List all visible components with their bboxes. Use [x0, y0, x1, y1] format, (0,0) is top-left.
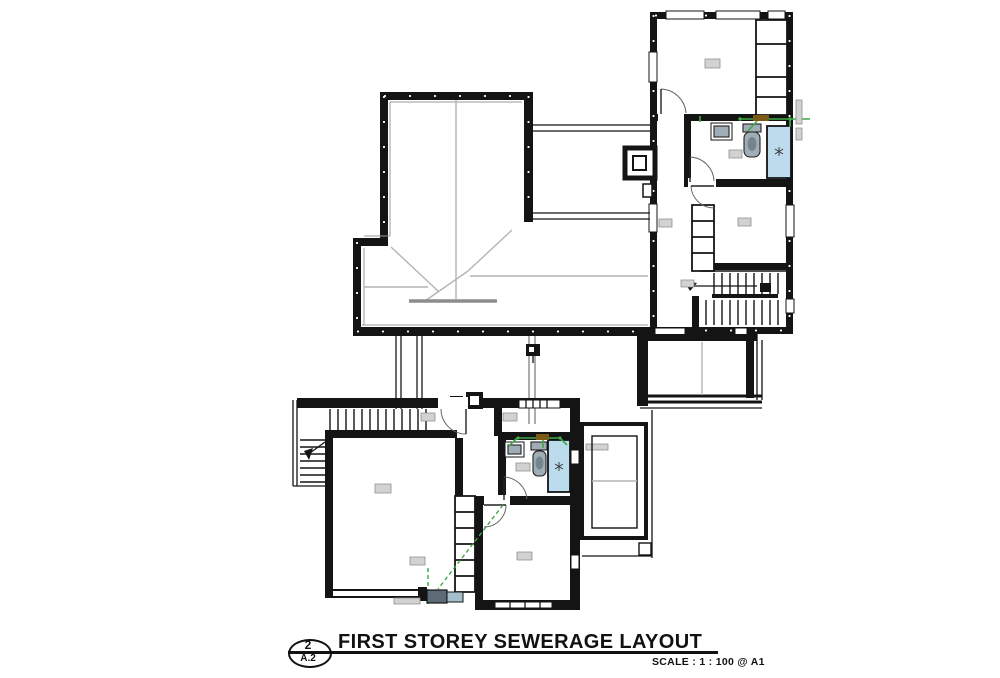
chimney-flue — [633, 156, 646, 170]
roof-parapet-walls — [353, 92, 653, 336]
lower-walls — [297, 392, 580, 610]
annex-bedroom-wardrobe — [692, 205, 714, 271]
lower-wc-bowl — [536, 457, 544, 470]
lower-wing — [293, 392, 608, 610]
stair-rails — [293, 400, 437, 486]
gully-inlet — [422, 593, 427, 600]
annex-basin-bowl — [714, 126, 729, 137]
annex-wc-cistern — [743, 124, 761, 132]
annex-room1-wardrobe — [756, 20, 787, 115]
upper-annex — [649, 11, 810, 335]
annex-wc-bowl — [748, 137, 757, 151]
pipe-node — [558, 436, 561, 439]
scale-label: SCALE : 1 : 100 @ A1 — [652, 656, 765, 668]
lower-wc-cistern — [531, 442, 547, 450]
roof-ridge-lines — [364, 100, 648, 301]
annex-terrace — [637, 334, 762, 408]
terrace-railing — [640, 396, 762, 402]
lower-door-arcs — [441, 409, 527, 527]
annex-stair-newel — [760, 283, 771, 292]
gully-grate — [447, 592, 463, 602]
annex-pipe-fitting — [753, 115, 769, 121]
external-stair-treads — [300, 409, 426, 482]
porch-canopy — [582, 410, 652, 558]
detail-number: 2 — [288, 638, 328, 652]
canopy-post — [639, 543, 651, 555]
lower-pipe-fitting — [536, 434, 549, 440]
lower-basin-bowl — [508, 445, 521, 454]
floor-plan-canvas — [0, 0, 1000, 678]
living-window-band — [333, 590, 418, 597]
pipe-node — [516, 436, 519, 439]
pipe-node — [788, 117, 791, 120]
drawing-title: FIRST STOREY SEWERAGE LAYOUT — [338, 631, 702, 654]
pipe-node — [738, 117, 741, 120]
main-roof — [353, 92, 655, 336]
floor-gully — [427, 590, 447, 603]
roof-outlet-core — [529, 347, 534, 352]
sheet-reference: A.2 — [288, 653, 328, 664]
chimney-stub — [643, 184, 652, 197]
drawing-sheet: 2 A.2 FIRST STOREY SEWERAGE LAYOUT SCALE… — [0, 0, 1000, 678]
